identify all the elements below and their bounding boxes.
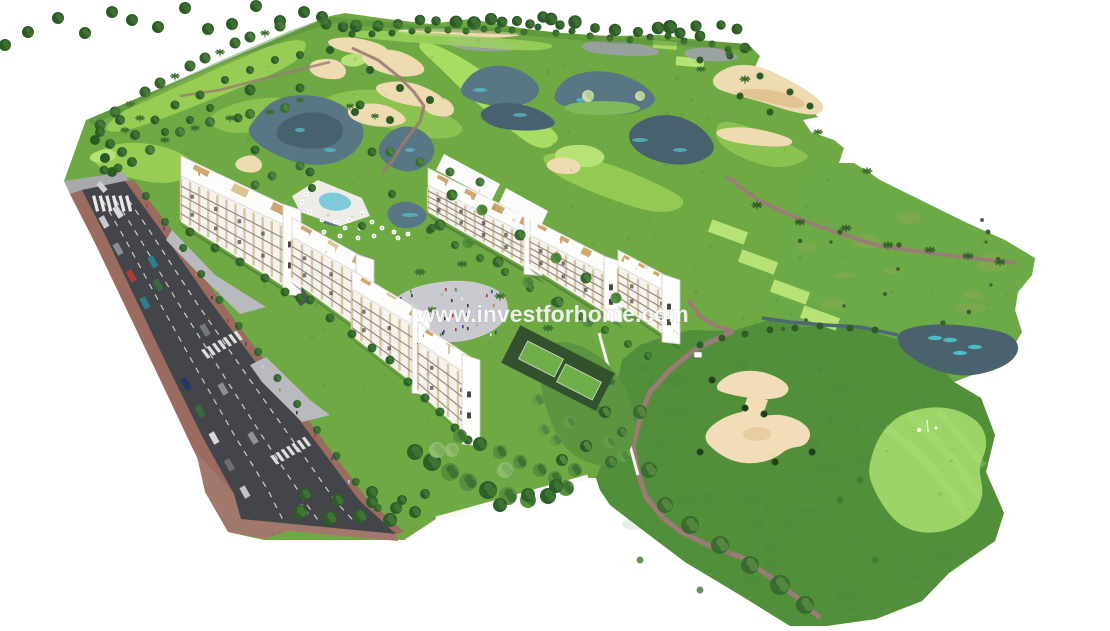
svg-text:www.investforhome.com: www.investforhome.com	[416, 301, 688, 327]
